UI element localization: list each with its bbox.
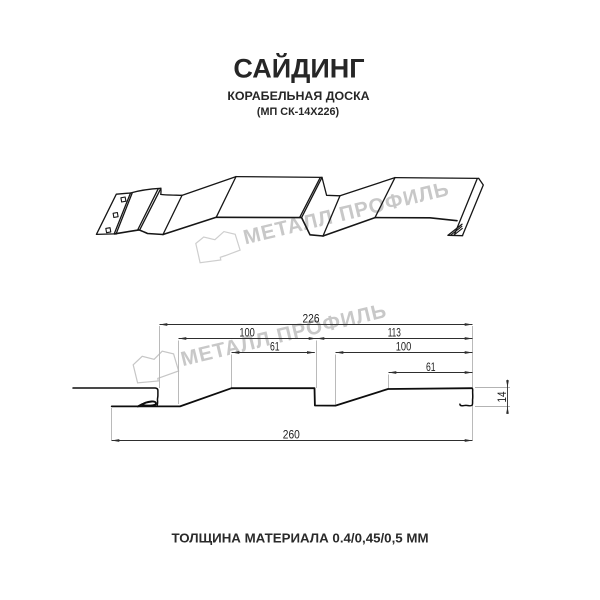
svg-text:КОРАБЕЛЬНАЯ ДОСКА: КОРАБЕЛЬНАЯ ДОСКА <box>227 89 369 103</box>
svg-text:113: 113 <box>388 328 401 340</box>
svg-text:61: 61 <box>426 362 436 374</box>
svg-text:226: 226 <box>303 313 320 325</box>
svg-text:100: 100 <box>396 342 412 354</box>
svg-text:14: 14 <box>497 391 509 403</box>
svg-text:61: 61 <box>270 342 280 354</box>
svg-text:260: 260 <box>283 429 300 441</box>
svg-text:(МП СК-14Х226): (МП СК-14Х226) <box>257 106 340 118</box>
svg-text:ТОЛЩИНА МАТЕРИАЛА 0.4/0,45/0,5: ТОЛЩИНА МАТЕРИАЛА 0.4/0,45/0,5 ММ <box>171 531 428 546</box>
svg-text:100: 100 <box>239 328 255 340</box>
svg-text:САЙДИНГ: САЙДИНГ <box>233 52 364 83</box>
